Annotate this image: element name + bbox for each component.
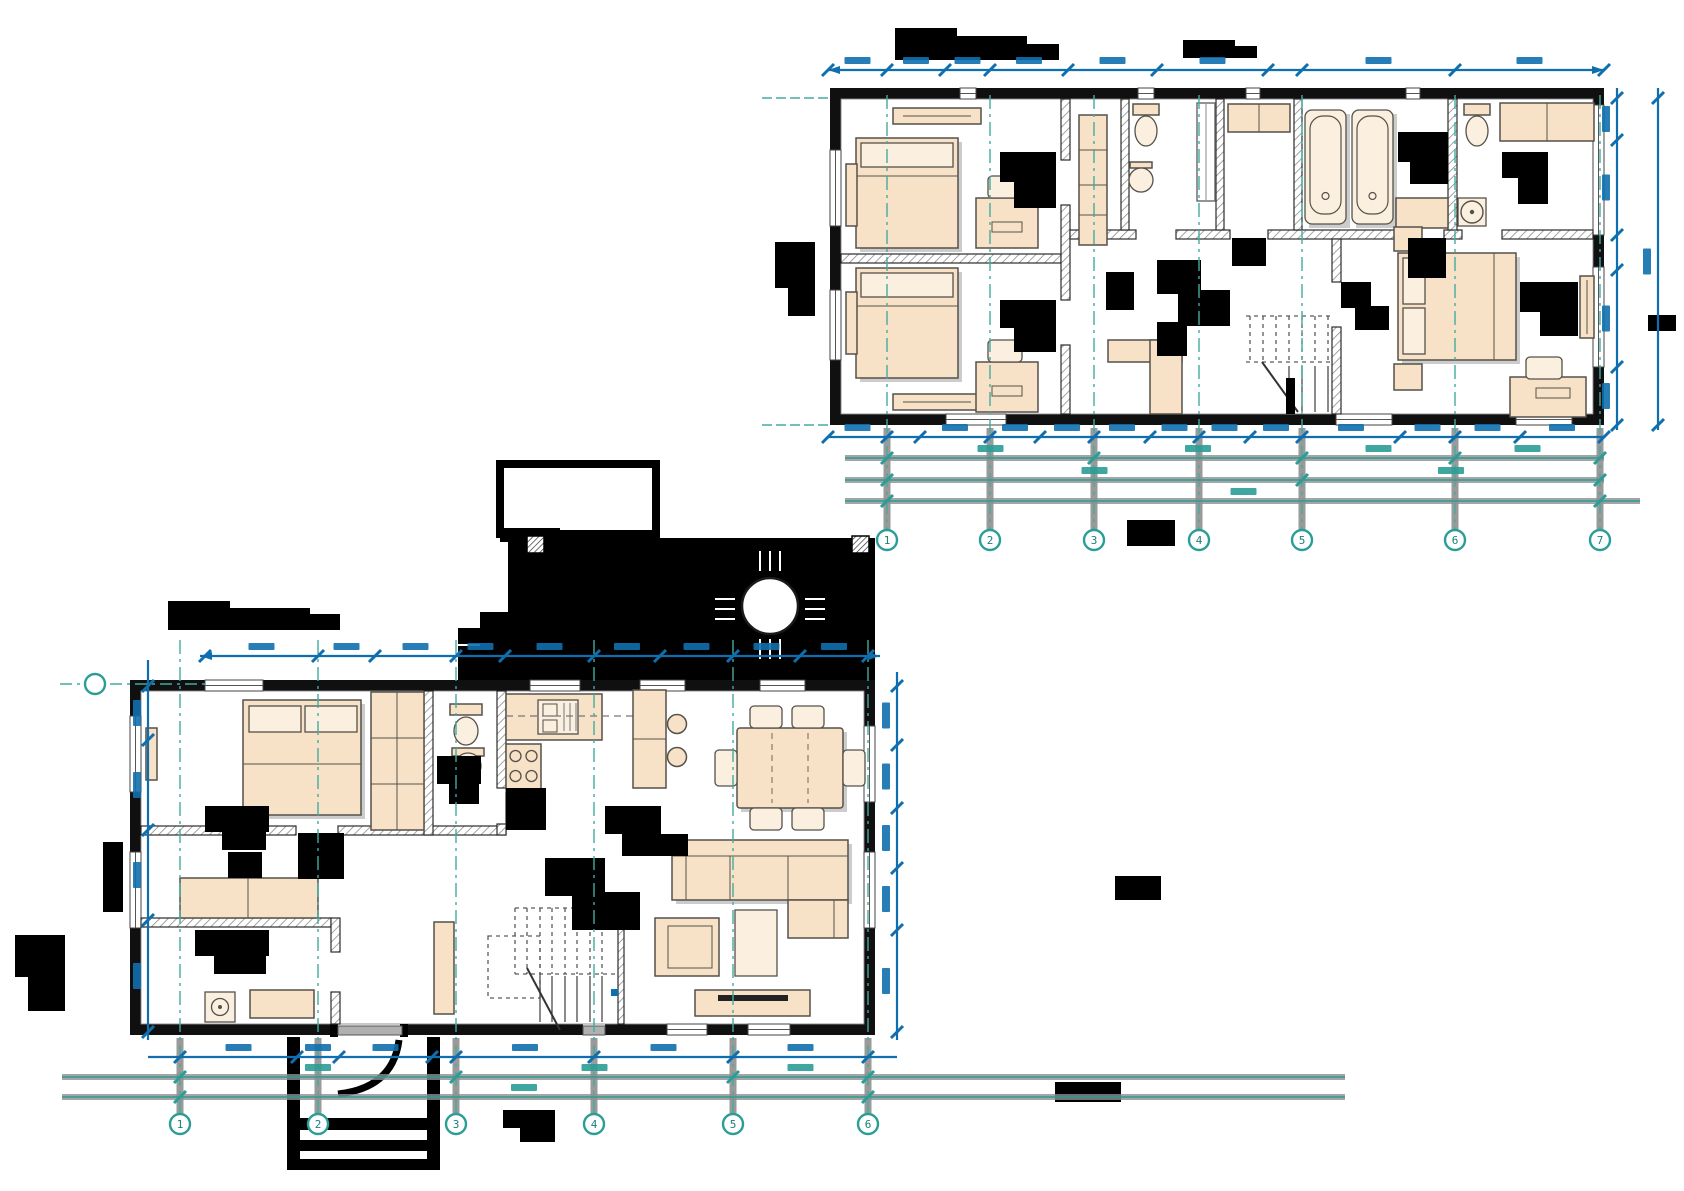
dim-value-illegible — [511, 1084, 537, 1091]
dim-value-illegible — [133, 963, 141, 989]
dim-value-illegible — [1002, 424, 1028, 431]
post-1 — [527, 536, 544, 553]
dim-value-illegible — [249, 643, 275, 650]
desk-2 — [976, 362, 1038, 412]
grid-bubble-label: 4 — [1196, 534, 1203, 547]
dim-value-illegible — [845, 57, 871, 64]
dim-value-illegible — [788, 1044, 814, 1051]
wc-1 — [1129, 103, 1215, 201]
dim-value-illegible — [1438, 467, 1464, 474]
door-leaf — [434, 922, 454, 1014]
pillow — [1403, 308, 1425, 354]
dim-value-illegible — [1602, 175, 1610, 201]
upper-floor-plan — [762, 28, 1676, 546]
toilet-tank — [1133, 104, 1159, 115]
grid-bubble-label: 5 — [1299, 534, 1306, 547]
dim-value-illegible — [1415, 424, 1441, 431]
dim-value-illegible — [684, 643, 710, 650]
grid-bubble-label: 2 — [987, 534, 994, 547]
dim-value-illegible — [651, 1044, 677, 1051]
washbasin-round — [1129, 168, 1153, 192]
dining-chair — [843, 750, 865, 786]
terrace-chair-top — [751, 548, 789, 574]
dim-value-illegible — [133, 700, 141, 726]
floor-plan-canvas: 1234567123456 — [0, 0, 1684, 1191]
dim-value-illegible — [226, 1044, 252, 1051]
redacted-title-lower — [168, 601, 522, 644]
dim-value-illegible — [821, 643, 847, 650]
dim-value-illegible — [754, 643, 780, 650]
nightstand-2 — [1394, 364, 1422, 390]
dim-value-illegible — [1366, 445, 1392, 452]
redacted-labels-lower — [15, 756, 1161, 1142]
dim-value-illegible — [1212, 424, 1238, 431]
cooktop — [506, 744, 541, 790]
grid-bubble-label: 6 — [1452, 534, 1459, 547]
dim-value-illegible — [882, 886, 890, 912]
desk — [1510, 377, 1586, 417]
dim-value-illegible — [1643, 249, 1651, 275]
dining-chair — [750, 808, 782, 830]
grid-bubble-label: 7 — [1597, 534, 1604, 547]
pillow — [861, 143, 953, 167]
dim-value-illegible — [1338, 424, 1364, 431]
dim-value-illegible — [1162, 424, 1188, 431]
dim-value-illegible — [1185, 445, 1211, 452]
tv-stand — [695, 990, 810, 1016]
dim-value-illegible — [882, 825, 890, 851]
grid-bubble-label: 3 — [453, 1118, 460, 1131]
terrace-chair-left — [712, 590, 738, 628]
entry-door-sill — [338, 1026, 402, 1035]
tv — [718, 995, 788, 1001]
grid-bubble-label: 1 — [884, 534, 891, 547]
terrace — [458, 464, 875, 683]
dim-value-illegible — [1231, 488, 1257, 495]
dim-value-illegible — [133, 862, 141, 888]
dim-value-illegible — [1515, 445, 1541, 452]
drawing-sheet: 1234567123456 — [0, 0, 1684, 1191]
dining-chair — [792, 706, 824, 728]
dim-value-illegible — [1263, 424, 1289, 431]
toilet-bowl — [1135, 116, 1157, 146]
chair — [1526, 357, 1562, 379]
dining-chair — [750, 706, 782, 728]
grid-bubble-label: 2 — [315, 1118, 322, 1131]
dim-value-illegible — [1602, 106, 1610, 132]
vanity-counter — [1396, 198, 1448, 228]
dining-chair — [792, 808, 824, 830]
bedroom-2 — [846, 268, 1038, 412]
dim-value-illegible — [1366, 57, 1392, 64]
dim-value-illegible — [537, 643, 563, 650]
kitchen-sink-unit — [538, 700, 578, 734]
sofa-body — [672, 840, 848, 900]
redacted-title-upper — [895, 28, 1257, 60]
post-2 — [852, 536, 869, 553]
dim-value-illegible — [882, 968, 890, 994]
dim-value-illegible — [373, 1044, 399, 1051]
toilet-tank — [1464, 104, 1490, 115]
grid-bubble-label: 4 — [591, 1118, 598, 1131]
bench — [180, 878, 318, 918]
dim-value-illegible — [1016, 57, 1042, 64]
dim-value-illegible — [955, 57, 981, 64]
dim-value-illegible — [1054, 424, 1080, 431]
dim-value-illegible — [1109, 424, 1135, 431]
grid-bubble-label: 1 — [177, 1118, 184, 1131]
dim-value-illegible — [133, 772, 141, 798]
dim-value-illegible — [1602, 383, 1610, 409]
dim-value-illegible — [845, 424, 871, 431]
dim-value-illegible — [512, 1044, 538, 1051]
dim-value-illegible — [334, 643, 360, 650]
dim-value-illegible — [582, 1064, 608, 1071]
toilet-bowl — [454, 717, 478, 745]
toilet-tank — [450, 704, 482, 715]
dim-value-illegible — [1200, 57, 1226, 64]
dim-value-illegible — [1082, 467, 1108, 474]
closet — [1228, 104, 1290, 132]
dim-value-illegible — [305, 1064, 331, 1071]
pillow — [861, 273, 953, 297]
grid-bubble-label: 3 — [1091, 534, 1098, 547]
dim-value-illegible — [403, 643, 429, 650]
pillow — [249, 706, 301, 732]
dim-value-illegible — [1100, 57, 1126, 64]
dim-value-illegible — [978, 445, 1004, 452]
radiator — [846, 292, 857, 354]
grid-bubble-label: 5 — [730, 1118, 737, 1131]
pillow — [305, 706, 357, 732]
dim-value-illegible — [1549, 424, 1575, 431]
dim-value-illegible — [942, 424, 968, 431]
bar-stool-1 — [668, 715, 687, 734]
bedroom-lower — [146, 692, 424, 830]
dim-value-illegible — [882, 703, 890, 729]
canopy-outline — [500, 464, 656, 534]
round-table — [742, 578, 798, 634]
dim-value-illegible — [903, 57, 929, 64]
dim-value-illegible — [882, 764, 890, 790]
sofa-chaise — [788, 900, 848, 938]
tall-cabinet — [1079, 115, 1107, 245]
grid-bubble-label: 6 — [865, 1118, 872, 1131]
staircase-upper — [1246, 316, 1332, 414]
utility-counter — [250, 990, 314, 1018]
dining-table — [737, 728, 843, 808]
dim-value-illegible — [788, 1064, 814, 1071]
bar-stool-2 — [668, 748, 687, 767]
radiator — [846, 164, 857, 226]
armchair — [655, 918, 719, 976]
dim-value-illegible — [1602, 306, 1610, 332]
dim-value-illegible — [1475, 424, 1501, 431]
living-dining-room — [655, 706, 865, 1016]
dim-value-illegible — [305, 1044, 331, 1051]
grid-row-bubble — [85, 674, 105, 694]
toilet-bowl — [1466, 116, 1488, 146]
coffee-table — [735, 910, 777, 976]
terrace-chair-right — [802, 590, 828, 628]
dim-value-illegible — [468, 643, 494, 650]
dim-value-illegible — [614, 643, 640, 650]
dim-value-illegible — [1517, 57, 1543, 64]
